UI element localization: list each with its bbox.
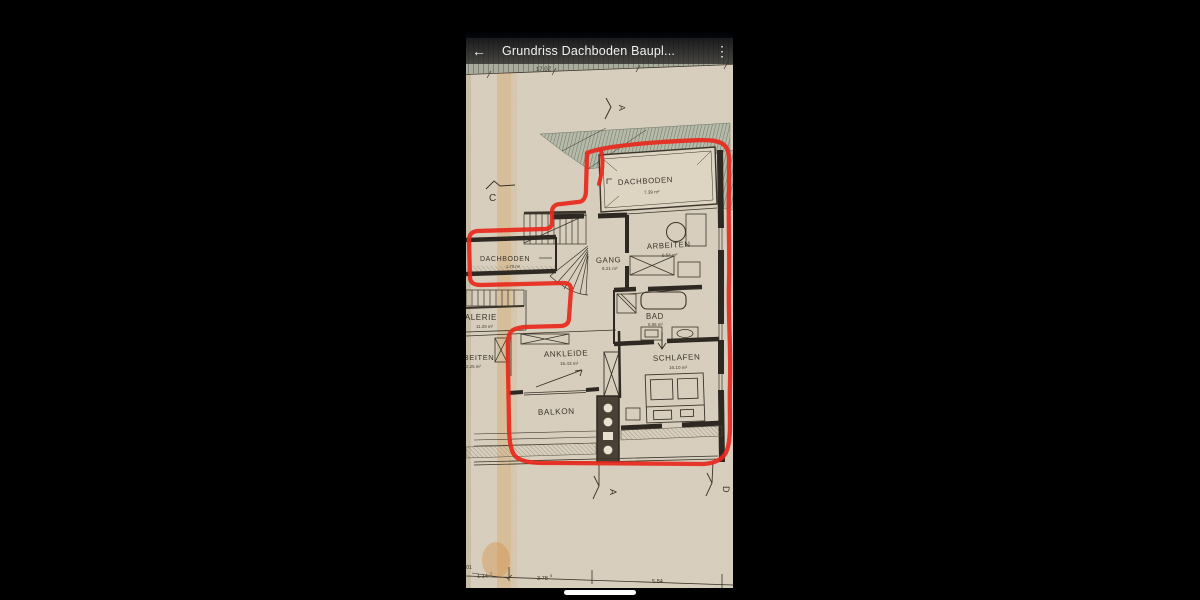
svg-text:SCHLAFEN: SCHLAFEN	[653, 352, 701, 363]
svg-text:5.84: 5.84	[652, 579, 663, 585]
dimension-top: 17.02	[536, 66, 552, 73]
svg-text:GALERIE: GALERIE	[466, 313, 497, 322]
svg-text:GANG: GANG	[596, 255, 622, 265]
image-viewer-screen: 17.02 C A	[466, 0, 733, 600]
svg-text:01: 01	[466, 565, 472, 571]
svg-text:7.39 m²: 7.39 m²	[644, 189, 660, 195]
svg-text:5.96 m²: 5.96 m²	[648, 322, 663, 327]
svg-text:2.25 m²: 2.25 m²	[466, 364, 481, 369]
floor-plan-photo[interactable]: 17.02 C A	[466, 38, 733, 588]
floor-plan-image[interactable]: 17.02 C A	[466, 38, 733, 588]
app-bar: ← Grundriss Dachboden Baupl... ⋮	[466, 38, 733, 64]
svg-text:DACHBODEN: DACHBODEN	[480, 256, 530, 263]
chimney-shaft	[597, 396, 619, 462]
svg-text:16.10 m²: 16.10 m²	[669, 365, 688, 370]
svg-text:1.70 m²: 1.70 m²	[506, 264, 521, 269]
svg-text:ARBEITEN: ARBEITEN	[466, 353, 494, 362]
svg-text:15.43 m²: 15.43 m²	[560, 361, 579, 366]
svg-text:BAD: BAD	[646, 312, 664, 321]
svg-text:11.29 m²: 11.29 m²	[476, 324, 494, 329]
svg-text:D: D	[721, 486, 731, 493]
back-button[interactable]: ←	[472, 44, 490, 58]
status-bar-area	[466, 0, 733, 38]
svg-text:9.54 m²: 9.54 m²	[662, 252, 678, 258]
svg-text:ANKLEIDE: ANKLEIDE	[544, 348, 589, 359]
home-indicator[interactable]	[564, 590, 636, 595]
room-dachboden-top: DACHBODEN 7.39 m²	[599, 147, 717, 212]
app-bar-title: Grundriss Dachboden Baupl...	[502, 44, 715, 58]
svg-text:1.14: 1.14	[477, 574, 488, 580]
svg-text:A: A	[608, 489, 618, 496]
svg-text:3.78: 3.78	[537, 576, 548, 582]
svg-text:A: A	[617, 105, 627, 112]
overflow-menu-icon[interactable]: ⋮	[715, 43, 727, 60]
svg-text:BALKON: BALKON	[538, 407, 575, 417]
svg-text:6.21 m²: 6.21 m²	[602, 266, 618, 271]
svg-text:C: C	[489, 193, 497, 204]
